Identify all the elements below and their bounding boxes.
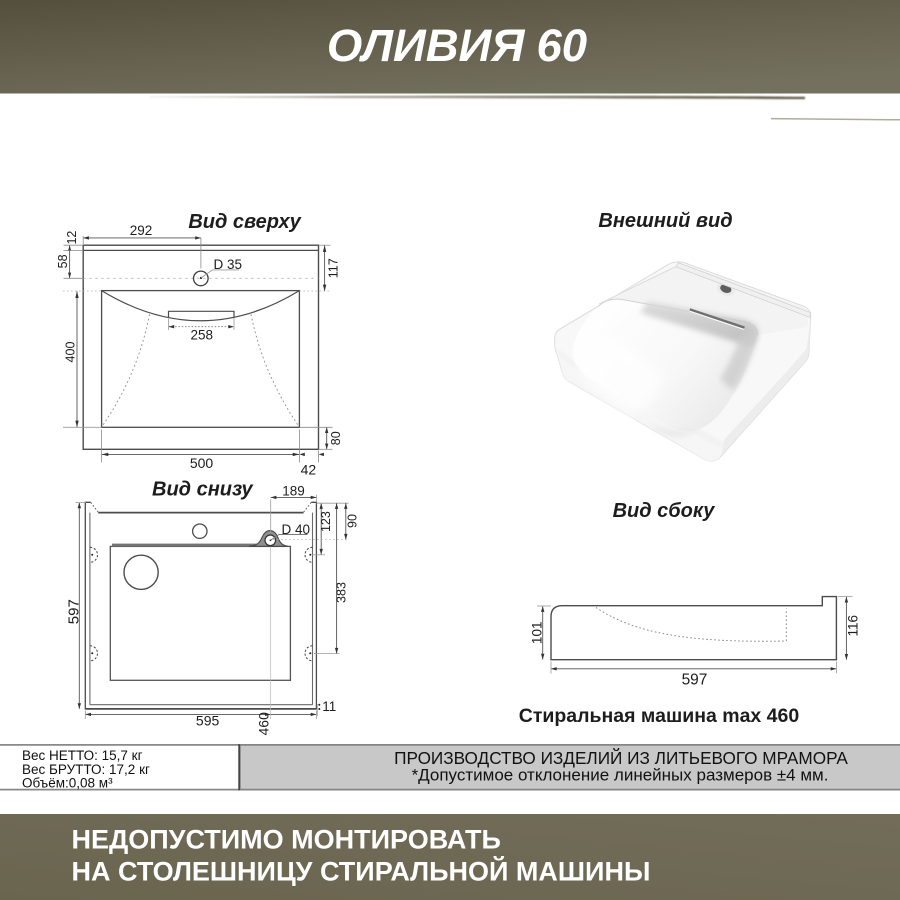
svg-text:400: 400 [64,342,78,363]
svg-text:500: 500 [190,455,214,471]
svg-text:Стиральная машина max 460: Стиральная машина max 460 [519,705,800,727]
svg-text:597: 597 [66,599,83,624]
svg-text:90: 90 [346,514,360,528]
svg-text:101: 101 [530,622,545,645]
svg-text:292: 292 [130,223,153,238]
svg-text:42: 42 [301,461,317,477]
svg-text:Вид сверху: Вид сверху [188,211,301,233]
svg-text:595: 595 [196,713,220,729]
svg-text:*Допустимое отклонение линейны: *Допустимое отклонение линейных размеров… [412,766,829,785]
svg-text:НЕДОПУСТИМО МОНТИРОВАТЬ: НЕДОПУСТИМО МОНТИРОВАТЬ [72,825,501,855]
svg-text:460: 460 [256,712,272,736]
svg-text:Вес НЕТТО: 15,7 кг: Вес НЕТТО: 15,7 кг [22,748,143,763]
svg-text:383: 383 [335,582,349,603]
svg-text:НА СТОЛЕШНИЦУ СТИРАЛЬНОЙ МАШИН: НА СТОЛЕШНИЦУ СТИРАЛЬНОЙ МАШИНЫ [72,856,651,887]
svg-text:11: 11 [322,699,336,714]
svg-text:Вид снизу: Вид снизу [152,479,253,501]
svg-text:258: 258 [191,328,214,343]
svg-text:597: 597 [682,672,708,689]
svg-text:Внешний вид: Внешний вид [598,210,732,232]
svg-text:123: 123 [319,511,333,532]
svg-text:80: 80 [329,431,343,445]
svg-text:ОЛИВИЯ60: ОЛИВИЯ60 [327,20,587,71]
svg-text:Объём:0,08 м³: Объём:0,08 м³ [22,775,113,790]
svg-text:D 35: D 35 [214,257,243,272]
svg-text:116: 116 [846,615,861,637]
svg-text:58: 58 [56,254,70,268]
svg-text:189: 189 [282,483,305,498]
svg-text:Вид сбоку: Вид сбоку [613,500,716,522]
svg-text:D 40: D 40 [282,522,311,537]
svg-text:12: 12 [65,231,79,245]
svg-text:117: 117 [327,258,341,278]
